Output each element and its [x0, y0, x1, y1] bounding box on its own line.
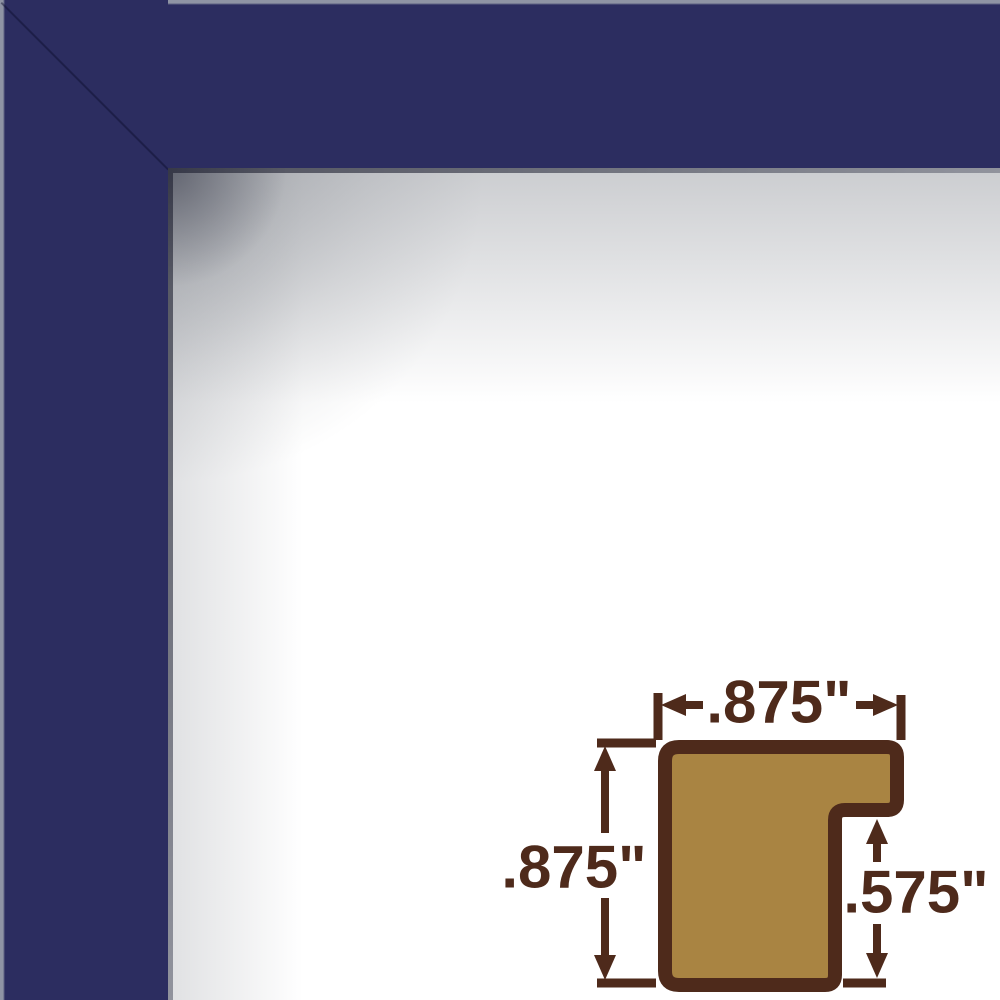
dim-rabbet-depth: .575" [843, 819, 989, 983]
arrowhead-up [866, 819, 888, 844]
product-image: .875" .875" .575" [0, 0, 1000, 1000]
arrowhead-down [866, 953, 888, 978]
moulding-profile-diagram: .875" .875" .575" [0, 0, 1000, 1000]
arrowhead-right [873, 694, 898, 716]
arrowhead-down [594, 955, 616, 980]
dim-top-width: .875" [658, 669, 901, 741]
dim-rabbet-depth-label: .575" [843, 859, 988, 926]
dim-top-width-label: .875" [706, 669, 851, 736]
arrowhead-left [661, 694, 686, 716]
dim-side-height-label: .875" [501, 834, 646, 901]
dim-side-height: .875" [501, 743, 656, 983]
arrowhead-up [594, 746, 616, 771]
